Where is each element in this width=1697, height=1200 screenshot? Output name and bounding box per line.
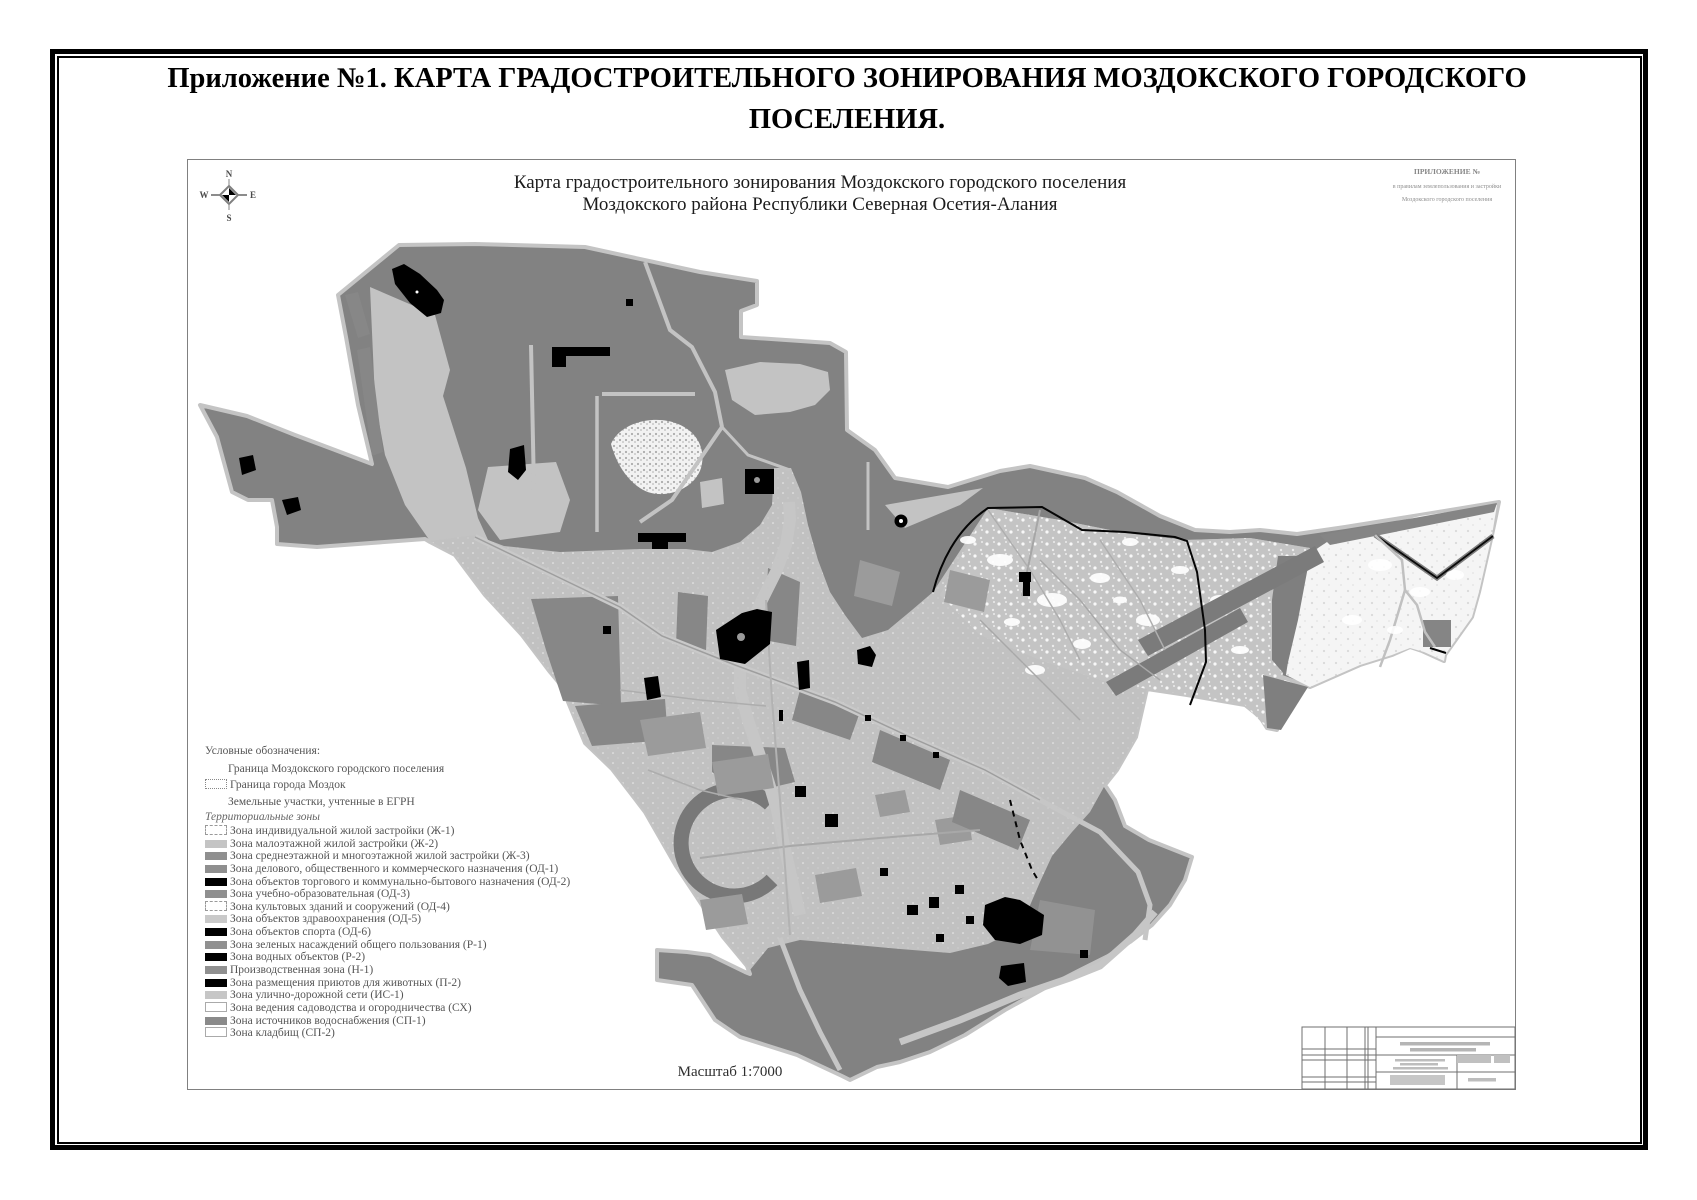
svg-text:W: W [200,190,209,200]
svg-text:S: S [226,213,231,223]
svg-text:N: N [226,169,233,179]
svg-text:E: E [250,190,256,200]
